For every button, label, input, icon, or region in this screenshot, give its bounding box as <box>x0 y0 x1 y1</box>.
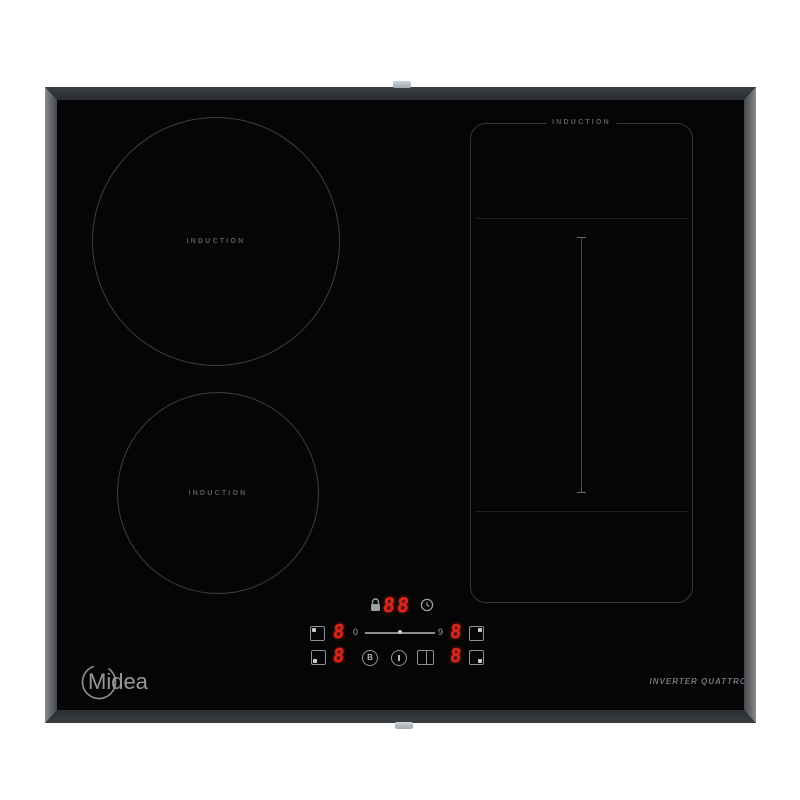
slider-max-label: 9 <box>438 628 443 637</box>
zone-label: INDUCTION <box>546 119 617 126</box>
flex-center-line <box>581 237 582 492</box>
zone-label: INDUCTION <box>189 490 248 497</box>
frame-right <box>744 87 756 723</box>
induction-hob: INDUCTION INDUCTION INDUCTION <box>45 87 756 723</box>
mounting-clip-bottom <box>395 722 413 729</box>
product-photo: INDUCTION INDUCTION INDUCTION <box>0 0 800 800</box>
flex-zone-divider <box>475 511 688 512</box>
boost-icon: B <box>362 650 378 666</box>
zone-power-display-back-right: 8 <box>449 623 462 642</box>
zone-select-front-right-icon <box>469 650 484 665</box>
slider-handle-dot <box>398 630 402 634</box>
model-tagline: INVERTER QUATTRO <box>597 677 744 686</box>
zone-power-display-front-right: 8 <box>449 647 462 666</box>
cooking-zone-flex-right: INDUCTION <box>470 123 693 603</box>
zone-power-display-back-left: 8 <box>332 623 345 642</box>
flex-center-tick-bottom <box>577 492 586 493</box>
frame-left <box>45 87 57 723</box>
zone-power-display-front-left: 8 <box>332 647 345 666</box>
cooking-zone-back-left: INDUCTION <box>92 117 340 366</box>
zone-label: INDUCTION <box>187 238 246 245</box>
power-icon <box>391 650 407 666</box>
zone-select-back-left-icon <box>310 626 325 641</box>
mounting-clip-top <box>393 81 411 88</box>
bridge-zone-icon <box>417 650 434 665</box>
zone-select-back-right-icon <box>469 626 484 641</box>
lock-icon <box>369 598 382 612</box>
zone-select-front-left-icon <box>311 650 326 665</box>
midea-logo: Midea <box>76 656 186 704</box>
brand-text: Midea <box>88 669 149 694</box>
frame-top <box>45 87 756 100</box>
glass-surface: INDUCTION INDUCTION INDUCTION <box>57 100 744 710</box>
slider-min-label: 0 <box>353 628 358 637</box>
timer-display: 88 <box>382 595 412 615</box>
flex-zone-divider <box>475 218 688 219</box>
cooking-zone-front-left: INDUCTION <box>117 392 319 594</box>
timer-clock-icon <box>420 598 434 612</box>
